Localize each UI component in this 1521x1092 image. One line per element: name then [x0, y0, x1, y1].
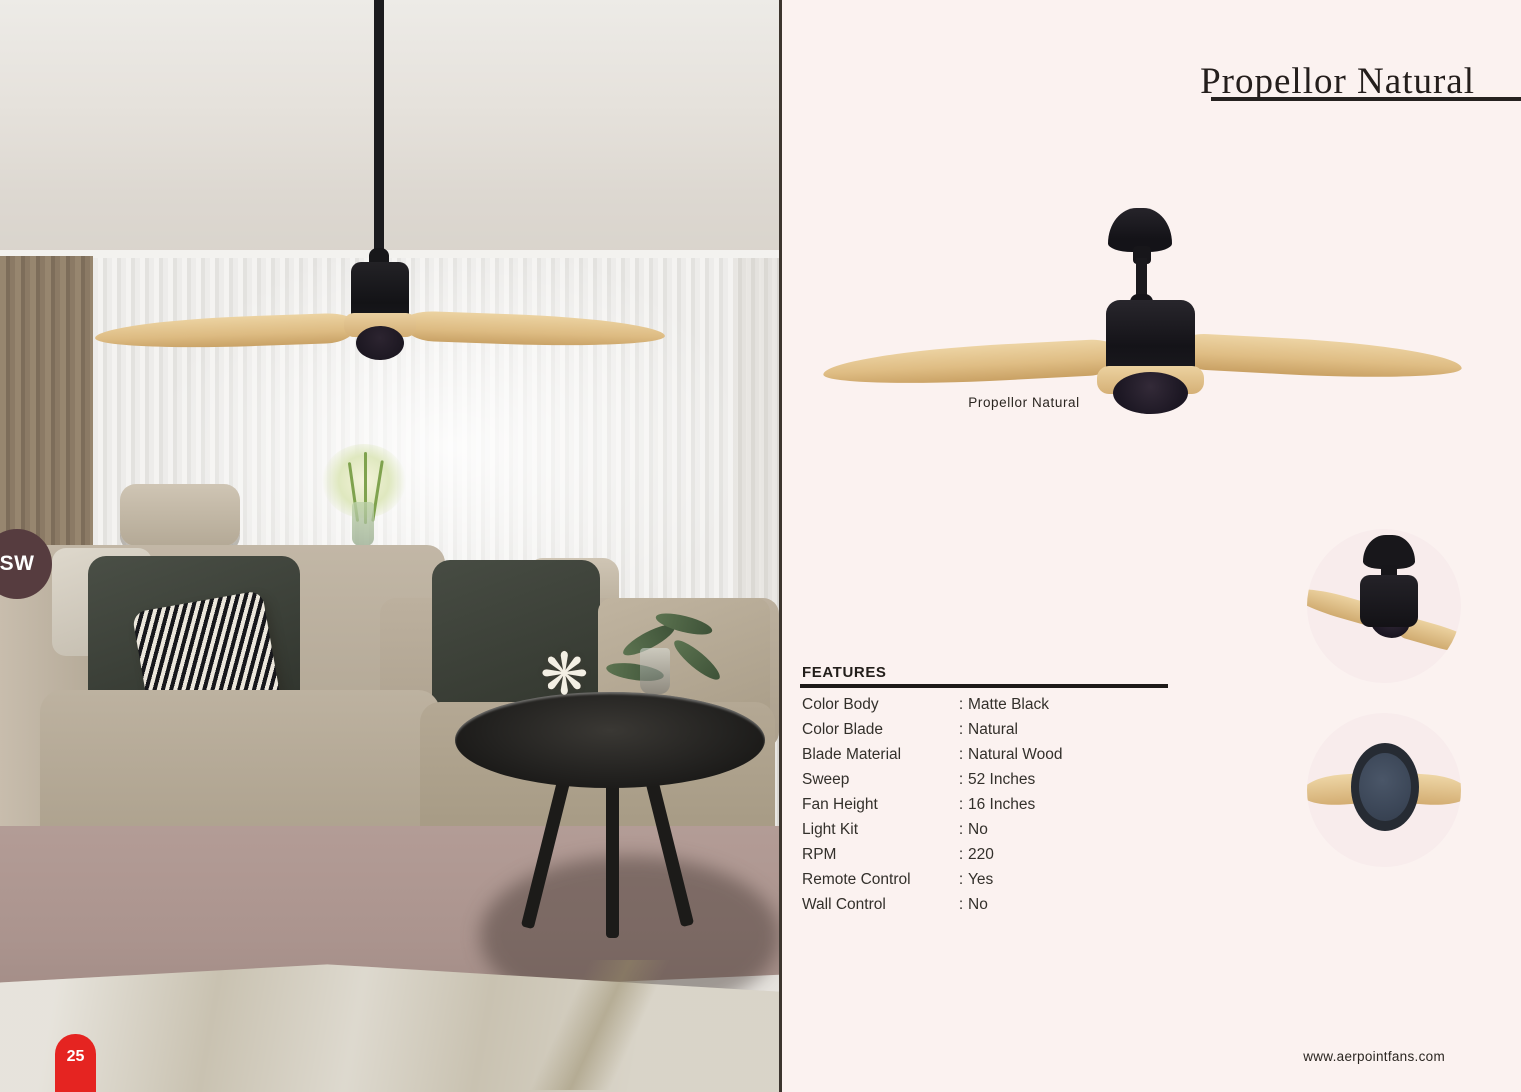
detail-circle-motor-underside — [1307, 713, 1461, 867]
table-vase — [640, 648, 670, 694]
flower-vase — [352, 502, 374, 546]
feature-row: Wall Control : No — [802, 892, 1182, 917]
fan-bottom-cap — [356, 326, 404, 360]
feature-colon: : — [954, 896, 968, 914]
fan-blade-right — [1177, 333, 1462, 384]
feature-row: Blade Material : Natural Wood — [802, 742, 1182, 767]
page-number-badge: 25 — [55, 1034, 96, 1092]
ceiling — [0, 0, 779, 258]
feature-value: Yes — [968, 871, 1182, 889]
fan-bottom-cap — [1113, 372, 1188, 414]
feature-value: 220 — [968, 846, 1182, 864]
star-ornament: ❋ — [540, 640, 589, 708]
detail-circle-motor-side — [1307, 529, 1461, 683]
feature-label: Sweep — [802, 771, 954, 789]
feature-value: No — [968, 896, 1182, 914]
feature-row: Light Kit : No — [802, 817, 1182, 842]
feature-label: Color Blade — [802, 721, 954, 739]
feature-value: 52 Inches — [968, 771, 1182, 789]
feature-colon: : — [954, 846, 968, 864]
feature-colon: : — [954, 721, 968, 739]
features-table: Color Body : Matte Black Color Blade : N… — [802, 692, 1182, 917]
motor-underside-oval — [1359, 753, 1411, 821]
title-underline — [1211, 97, 1521, 101]
feature-value: Natural Wood — [968, 746, 1182, 764]
feature-label: Fan Height — [802, 796, 954, 814]
feature-row: Color Blade : Natural — [802, 717, 1182, 742]
fan-canopy — [1363, 535, 1415, 569]
website-link[interactable]: www.aerpointfans.com — [1303, 1049, 1445, 1064]
table-leg — [606, 778, 619, 938]
feature-row: Remote Control : Yes — [802, 867, 1182, 892]
feature-colon: : — [954, 871, 968, 889]
livingroom-photo: ❋ SW 25 — [0, 0, 779, 1092]
feature-value: No — [968, 821, 1182, 839]
features-underline — [800, 684, 1168, 688]
feature-colon: : — [954, 821, 968, 839]
feature-colon: : — [954, 771, 968, 789]
feature-row: Fan Height : 16 Inches — [802, 792, 1182, 817]
feature-row: Sweep : 52 Inches — [802, 767, 1182, 792]
feature-label: Light Kit — [802, 821, 954, 839]
sofa-headrest — [120, 484, 240, 546]
feature-row: Color Body : Matte Black — [802, 692, 1182, 717]
feature-colon: : — [954, 796, 968, 814]
fan-blade-left — [822, 338, 1119, 389]
catalog-page: ❋ SW 25 Propellor Natural Propellor Natu… — [0, 0, 1521, 1092]
feature-label: Remote Control — [802, 871, 954, 889]
feature-row: RPM : 220 — [802, 842, 1182, 867]
product-panel: Propellor Natural Propellor Natural FEAT… — [782, 0, 1521, 1092]
feature-value: Matte Black — [968, 696, 1182, 714]
marble-vein — [430, 960, 770, 1090]
page-number: 25 — [67, 1048, 85, 1066]
feature-value: 16 Inches — [968, 796, 1182, 814]
feature-label: RPM — [802, 846, 954, 864]
feature-label: Color Body — [802, 696, 954, 714]
product-caption: Propellor Natural — [924, 395, 1124, 410]
table-glass-top — [455, 692, 765, 788]
feature-label: Wall Control — [802, 896, 954, 914]
feature-value: Natural — [968, 721, 1182, 739]
feature-label: Blade Material — [802, 746, 954, 764]
feature-colon: : — [954, 746, 968, 764]
features-heading: FEATURES — [802, 664, 887, 681]
fan-motor — [1360, 575, 1418, 627]
feature-colon: : — [954, 696, 968, 714]
side-tab-label: SW — [0, 552, 34, 576]
fan-downrod — [374, 0, 384, 268]
